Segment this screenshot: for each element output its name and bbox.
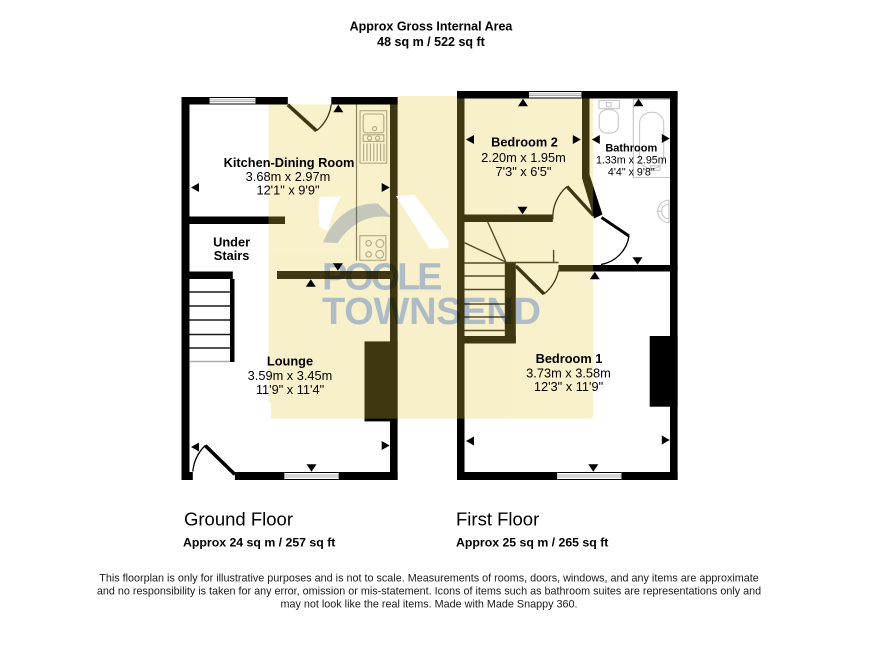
svg-text:3.73m x 3.58m: 3.73m x 3.58m bbox=[526, 365, 611, 380]
svg-text:may not look like the real ite: may not look like the real items. Made w… bbox=[280, 599, 577, 611]
svg-text:Approx 25 sq m / 265 sq ft: Approx 25 sq m / 265 sq ft bbox=[456, 536, 608, 550]
svg-text:2.20m x 1.95m: 2.20m x 1.95m bbox=[481, 150, 566, 165]
svg-text:First Floor: First Floor bbox=[456, 509, 539, 530]
svg-text:11'9" x 11'4": 11'9" x 11'4" bbox=[256, 382, 324, 397]
svg-text:48 sq m / 522 sq ft: 48 sq m / 522 sq ft bbox=[377, 35, 486, 49]
svg-text:TOWNSEND: TOWNSEND bbox=[322, 291, 541, 333]
svg-text:4'4" x 9'8": 4'4" x 9'8" bbox=[608, 166, 655, 178]
svg-text:Stairs: Stairs bbox=[214, 248, 250, 263]
svg-text:Kitchen-Dining Room: Kitchen-Dining Room bbox=[224, 155, 355, 170]
svg-text:This floorplan is only for ill: This floorplan is only for illustrative … bbox=[99, 573, 759, 585]
svg-text:Lounge: Lounge bbox=[267, 354, 313, 369]
svg-text:7'3" x 6'5": 7'3" x 6'5" bbox=[496, 164, 552, 179]
svg-text:12'3" x 11'9": 12'3" x 11'9" bbox=[534, 379, 603, 394]
svg-text:Bathroom: Bathroom bbox=[605, 142, 657, 154]
svg-text:Bedroom 1: Bedroom 1 bbox=[536, 351, 603, 366]
svg-text:Ground Floor: Ground Floor bbox=[184, 509, 293, 530]
svg-text:1.33m x 2.95m: 1.33m x 2.95m bbox=[596, 155, 667, 167]
svg-text:and no responsibility is taken: and no responsibility is taken for any e… bbox=[97, 586, 761, 598]
svg-text:Approx Gross Internal Area: Approx Gross Internal Area bbox=[350, 20, 514, 34]
svg-text:Approx 24 sq m / 257 sq ft: Approx 24 sq m / 257 sq ft bbox=[183, 536, 335, 550]
svg-text:12'1" x 9'9": 12'1" x 9'9" bbox=[256, 183, 319, 198]
svg-text:Bedroom 2: Bedroom 2 bbox=[491, 135, 558, 150]
svg-text:3.59m x 3.45m: 3.59m x 3.45m bbox=[248, 368, 333, 383]
